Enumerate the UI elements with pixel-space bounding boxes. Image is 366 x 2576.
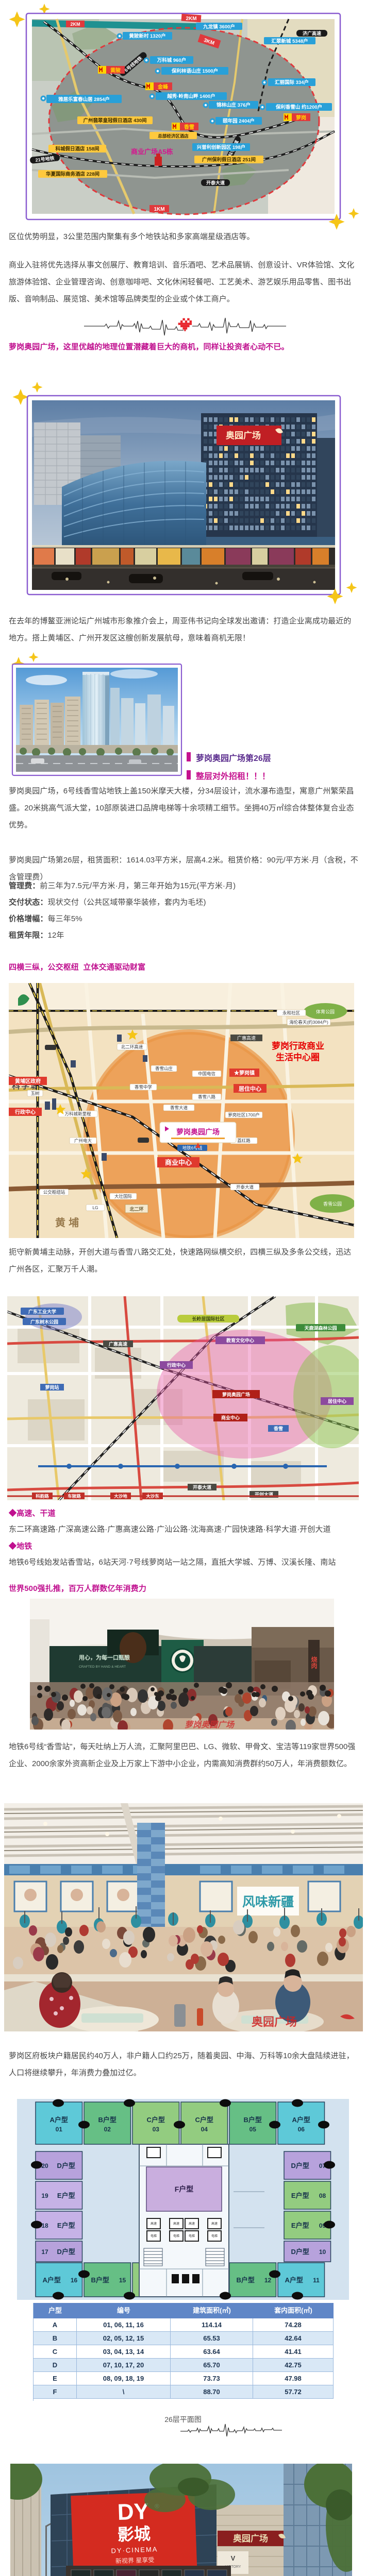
- svg-text:大沙地: 大沙地: [114, 1494, 127, 1499]
- svg-text:奥园广场: 奥园广场: [233, 2533, 268, 2544]
- svg-text:汇丽国际 334户: 汇丽国际 334户: [275, 79, 309, 86]
- svg-text:大壮国际: 大壮国际: [114, 1194, 132, 1199]
- svg-text:B户型: B户型: [98, 2116, 117, 2124]
- svg-text:行政中心: 行政中心: [167, 1362, 186, 1368]
- svg-text:黄陂: 黄陂: [110, 67, 121, 74]
- svg-text:萝岗奥园广场: 萝岗奥园广场: [185, 1720, 235, 1730]
- svg-text:济广高速: 济广高速: [303, 30, 321, 36]
- svg-text:高速: 高速: [211, 2222, 218, 2226]
- svg-text:汇翠新城 5348户: 汇翠新城 5348户: [271, 38, 308, 44]
- svg-text:03: 03: [153, 2126, 160, 2133]
- svg-text:D户型: D户型: [291, 2162, 309, 2170]
- svg-text:广州电大: 广州电大: [74, 1138, 92, 1143]
- svg-text:16: 16: [71, 2277, 78, 2284]
- svg-text:A户型: A户型: [292, 2116, 310, 2124]
- svg-text:广惠高速: 广惠高速: [109, 1341, 127, 1347]
- svg-text:生活中心圈: 生活中心圈: [276, 1052, 320, 1062]
- svg-text:广惠高速: 广惠高速: [237, 1035, 256, 1041]
- svg-text:香雪: 香雪: [184, 124, 194, 130]
- svg-text:萝岗行政商业: 萝岗行政商业: [272, 1041, 324, 1051]
- svg-text:广州翡翠皇冠假日酒店 430间: 广州翡翠皇冠假日酒店 430间: [84, 117, 147, 124]
- svg-text:V: V: [231, 2554, 236, 2562]
- svg-text:E户型: E户型: [291, 2192, 309, 2199]
- svg-text:高速: 高速: [189, 2222, 195, 2226]
- svg-text:电梯: 电梯: [189, 2234, 195, 2238]
- svg-text:A户型: A户型: [285, 2276, 303, 2284]
- svg-text:北二环高速: 北二环高速: [121, 1044, 143, 1049]
- svg-text:兴普利创新园区 198户: 兴普利创新园区 198户: [197, 144, 246, 150]
- svg-text:保利香雪山 约1200户: 保利香雪山 约1200户: [275, 104, 322, 110]
- svg-text:北二环: 北二环: [129, 1206, 143, 1212]
- svg-text:天鹿湖森林公园: 天鹿湖森林公园: [304, 1325, 337, 1331]
- svg-text:香雪公园: 香雪公园: [323, 1201, 342, 1207]
- svg-text:DY·CINEMA: DY·CINEMA: [111, 2545, 158, 2554]
- svg-text:科城假日酒店 158间: 科城假日酒店 158间: [56, 146, 99, 152]
- svg-text:总部经济区酒店: 总部经济区酒店: [158, 133, 189, 139]
- svg-text:教育文化中心: 教育文化中心: [226, 1337, 254, 1343]
- svg-text:华夏国际商务酒店 228间: 华夏国际商务酒店 228间: [46, 171, 99, 177]
- svg-text:17: 17: [41, 2248, 48, 2256]
- svg-text:居住中心: 居住中心: [328, 1398, 346, 1404]
- svg-text:黄埔区政府: 黄埔区政府: [15, 1078, 41, 1084]
- svg-text:科韵路: 科韵路: [36, 1494, 49, 1499]
- svg-text:新视界 星享受: 新视界 星享受: [115, 2556, 155, 2565]
- svg-text:20: 20: [41, 2162, 48, 2170]
- svg-text:萝岗社区1700户: 萝岗社区1700户: [228, 1112, 259, 1117]
- svg-text:公交枢纽站: 公交枢纽站: [43, 1190, 65, 1195]
- svg-text:高速: 高速: [151, 2222, 157, 2226]
- svg-text:04: 04: [201, 2126, 208, 2133]
- svg-text:永和社区: 永和社区: [282, 1010, 301, 1015]
- svg-text:长岭居国际社区: 长岭居国际社区: [192, 1316, 224, 1321]
- svg-text:越秀·岭南山畔 1400户: 越秀·岭南山畔 1400户: [167, 93, 215, 99]
- svg-text:B户型: B户型: [91, 2276, 109, 2284]
- svg-text:B户型: B户型: [237, 2276, 255, 2284]
- svg-text:06: 06: [298, 2126, 305, 2133]
- svg-text:19: 19: [41, 2192, 48, 2199]
- svg-text:08: 08: [319, 2192, 326, 2199]
- svg-text:B户型: B户型: [244, 2116, 262, 2124]
- svg-text:高速: 高速: [173, 2222, 179, 2226]
- svg-text:烧肉: 烧肉: [310, 1656, 318, 1669]
- svg-text:A户型: A户型: [50, 2116, 68, 2124]
- svg-text:奥园广场: 奥园广场: [226, 430, 261, 440]
- svg-text:12: 12: [264, 2277, 272, 2284]
- svg-text:香雪大道: 香雪大道: [170, 1105, 188, 1110]
- svg-text:C户型: C户型: [195, 2116, 213, 2124]
- svg-text:电梯: 电梯: [173, 2234, 179, 2238]
- svg-text:雅居乐富春山居 2854户: 雅居乐富春山居 2854户: [58, 96, 110, 103]
- svg-text:萝岗奥园广场: 萝岗奥园广场: [222, 1392, 250, 1397]
- svg-text:广东工业大学: 广东工业大学: [28, 1309, 56, 1314]
- svg-text:A户型: A户型: [43, 2276, 61, 2284]
- svg-text:荔红路: 荔红路: [237, 1138, 251, 1143]
- svg-text:大沙东: 大沙东: [146, 1494, 159, 1499]
- svg-text:居住中心: 居住中心: [239, 1085, 261, 1092]
- svg-text:萝岗奥园广场: 萝岗奥园广场: [176, 1128, 220, 1136]
- svg-text:香雪八路: 香雪八路: [198, 1094, 216, 1099]
- svg-text:商业中心: 商业中心: [165, 1159, 192, 1166]
- svg-text:E户型: E户型: [57, 2222, 75, 2229]
- svg-text:18: 18: [41, 2222, 48, 2229]
- svg-text:广东树木公园: 广东树木公园: [30, 1319, 58, 1325]
- svg-text:商业广场A5栋: 商业广场A5栋: [131, 148, 173, 156]
- svg-text:香雪中学: 香雪中学: [135, 1084, 153, 1090]
- svg-text:香雪: 香雪: [273, 1426, 283, 1431]
- svg-text:用心，为每一口甄酿: 用心，为每一口甄酿: [79, 1654, 130, 1661]
- svg-text:11: 11: [313, 2277, 320, 2284]
- svg-text:CRAFTED BY HAND & HEART: CRAFTED BY HAND & HEART: [79, 1665, 126, 1669]
- svg-text:海伦春天(约3084户): 海伦春天(约3084户): [289, 1020, 328, 1025]
- svg-text:2KM: 2KM: [70, 22, 80, 27]
- svg-text:1KM: 1KM: [154, 207, 164, 212]
- svg-text:2KM: 2KM: [186, 16, 196, 22]
- svg-text:F户型: F户型: [175, 2185, 194, 2193]
- svg-text:车陂路: 车陂路: [68, 1494, 81, 1499]
- svg-text:金峰: 金峰: [157, 83, 169, 90]
- svg-text:开泰大道: 开泰大道: [236, 1184, 254, 1190]
- svg-text:玉树: 玉树: [30, 1091, 40, 1096]
- svg-text:萝岗: 萝岗: [296, 114, 306, 121]
- svg-text:锦林山庄 376户: 锦林山庄 376户: [217, 102, 251, 108]
- svg-text:奥园广场: 奥园广场: [252, 2015, 297, 2028]
- svg-text:万科城新里程: 万科城新里程: [64, 1111, 91, 1116]
- svg-text:电梯: 电梯: [211, 2234, 218, 2238]
- svg-text:商业中心: 商业中心: [221, 1415, 240, 1420]
- svg-text:电梯: 电梯: [151, 2234, 157, 2238]
- svg-text:风味新疆: 风味新疆: [242, 1894, 294, 1909]
- svg-text:15: 15: [119, 2277, 126, 2284]
- svg-text:D户型: D户型: [57, 2162, 75, 2170]
- svg-text:D户型: D户型: [57, 2248, 75, 2256]
- svg-text:体育公园: 体育公园: [316, 1009, 335, 1014]
- svg-text:E户型: E户型: [57, 2192, 75, 2199]
- svg-text:C户型: C户型: [147, 2116, 165, 2124]
- svg-text:开泰大道: 开泰大道: [206, 180, 225, 185]
- svg-text:黄埔: 黄埔: [55, 1216, 82, 1229]
- svg-text:LG: LG: [92, 1205, 98, 1210]
- svg-text:★萝岗镇: ★萝岗镇: [234, 1070, 255, 1076]
- svg-text:05: 05: [249, 2126, 257, 2133]
- svg-text:万科城 960户: 万科城 960户: [157, 57, 187, 63]
- svg-text:萝岗站: 萝岗站: [45, 1384, 59, 1390]
- svg-text:香雪山庄: 香雪山庄: [155, 1066, 173, 1071]
- svg-text:影城: 影城: [117, 2524, 151, 2544]
- svg-text:E户型: E户型: [291, 2222, 309, 2229]
- svg-text:九龙镇 3600户: 九龙镇 3600户: [203, 24, 235, 30]
- svg-text:保利林语山庄 1500户: 保利林语山庄 1500户: [171, 68, 218, 74]
- svg-text:颐年园 2404户: 颐年园 2404户: [223, 118, 255, 124]
- svg-text:10: 10: [319, 2248, 326, 2256]
- svg-text:开泰大道: 开泰大道: [193, 1484, 211, 1490]
- svg-text:广州保利假日酒店 251间: 广州保利假日酒店 251间: [202, 157, 256, 163]
- svg-text:D户型: D户型: [291, 2248, 309, 2256]
- svg-text:02: 02: [104, 2126, 111, 2133]
- svg-text:01: 01: [56, 2126, 63, 2133]
- svg-text:DY: DY: [117, 2499, 149, 2525]
- svg-text:中国电信: 中国电信: [198, 1071, 216, 1076]
- svg-text:黄陂新村 1320户: 黄陂新村 1320户: [129, 33, 165, 39]
- svg-text:行政中心: 行政中心: [14, 1109, 36, 1115]
